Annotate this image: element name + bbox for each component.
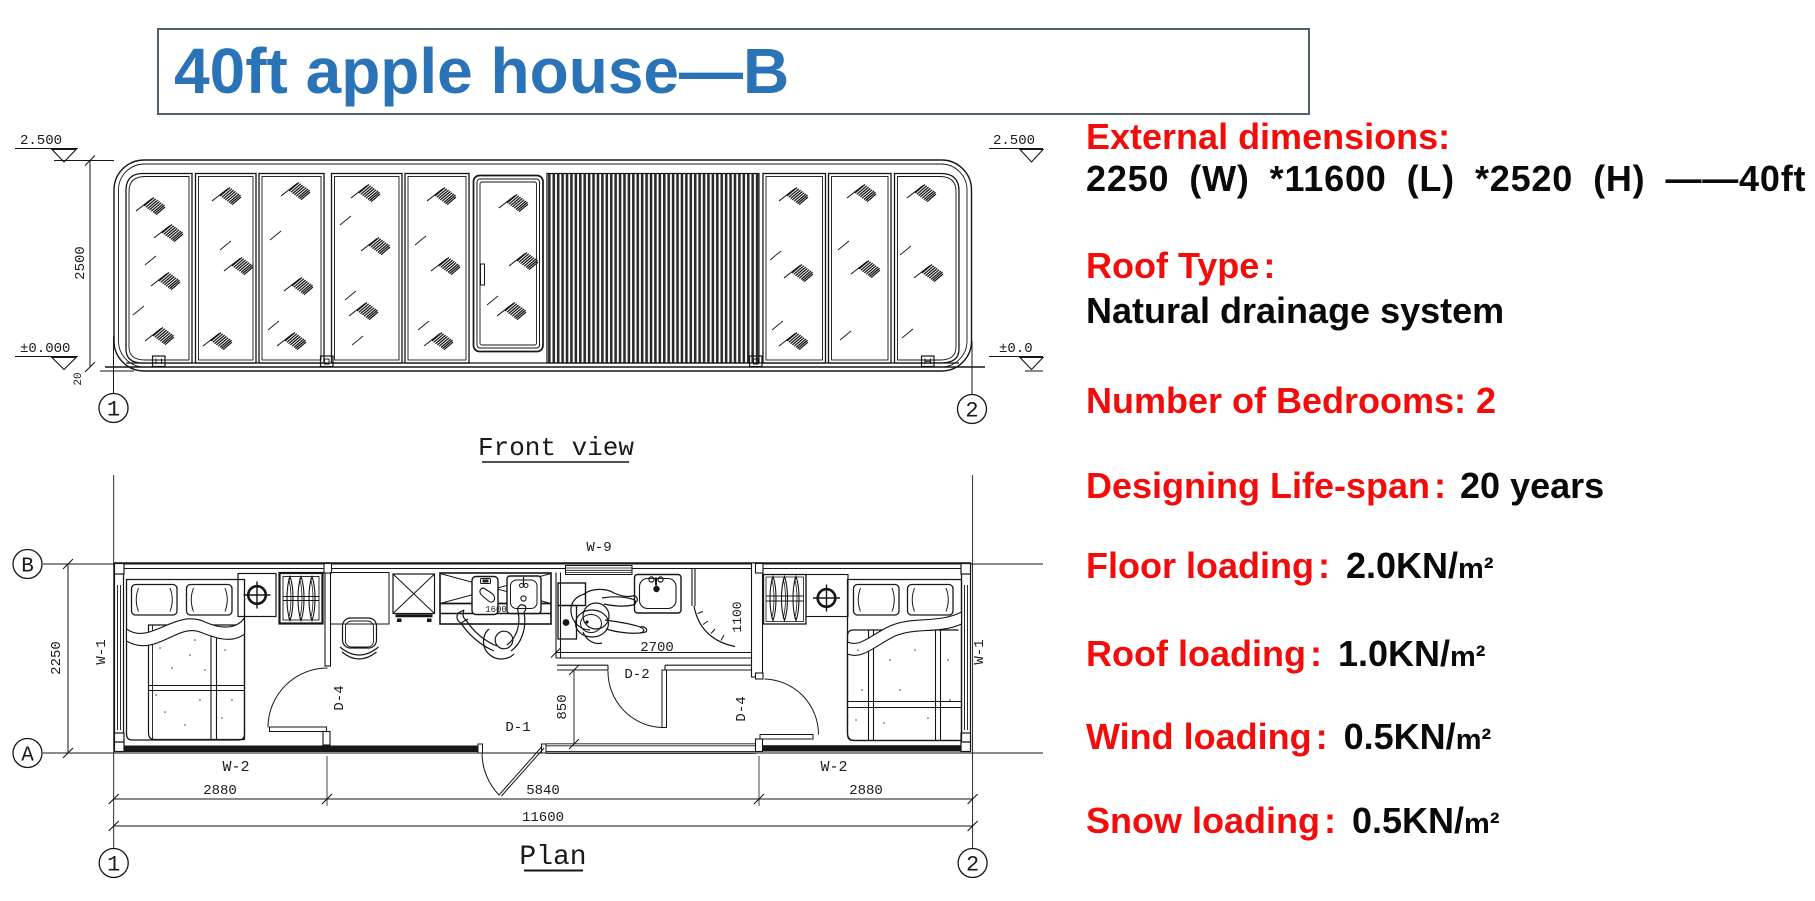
- svg-text:2700: 2700: [640, 640, 674, 656]
- svg-text:1: 1: [107, 398, 120, 423]
- svg-text:D-4: D-4: [332, 685, 348, 710]
- svg-text:1100: 1100: [730, 601, 745, 632]
- svg-text:W-1: W-1: [972, 639, 988, 664]
- svg-text:D-2: D-2: [624, 667, 649, 683]
- svg-text:2: 2: [966, 853, 979, 878]
- svg-text:2880: 2880: [849, 783, 883, 799]
- svg-text:2880: 2880: [203, 783, 237, 799]
- svg-text:±0.0: ±0.0: [999, 341, 1033, 357]
- svg-text:W-2: W-2: [820, 759, 847, 776]
- svg-text:1: 1: [107, 853, 120, 878]
- svg-text:±0.000: ±0.000: [20, 341, 70, 357]
- svg-text:A: A: [21, 745, 34, 768]
- svg-text:W-1: W-1: [94, 639, 110, 664]
- svg-text:2250: 2250: [49, 641, 65, 675]
- svg-text:W-9: W-9: [586, 540, 611, 556]
- svg-text:2.500: 2.500: [20, 133, 62, 149]
- svg-text:5840: 5840: [526, 783, 560, 799]
- svg-text:B: B: [21, 556, 34, 579]
- svg-text:D-1: D-1: [505, 720, 530, 736]
- svg-text:2.500: 2.500: [993, 133, 1035, 149]
- svg-text:1600: 1600: [485, 605, 507, 615]
- svg-text:Plan: Plan: [519, 842, 586, 873]
- svg-text:W-2: W-2: [222, 759, 249, 776]
- svg-text:11600: 11600: [522, 810, 564, 826]
- svg-text:2: 2: [965, 399, 978, 424]
- svg-text:D-4: D-4: [734, 696, 750, 721]
- svg-text:2500: 2500: [73, 246, 89, 280]
- svg-text:20: 20: [73, 372, 85, 385]
- svg-text:Front view: Front view: [478, 433, 634, 463]
- svg-text:850: 850: [555, 694, 571, 719]
